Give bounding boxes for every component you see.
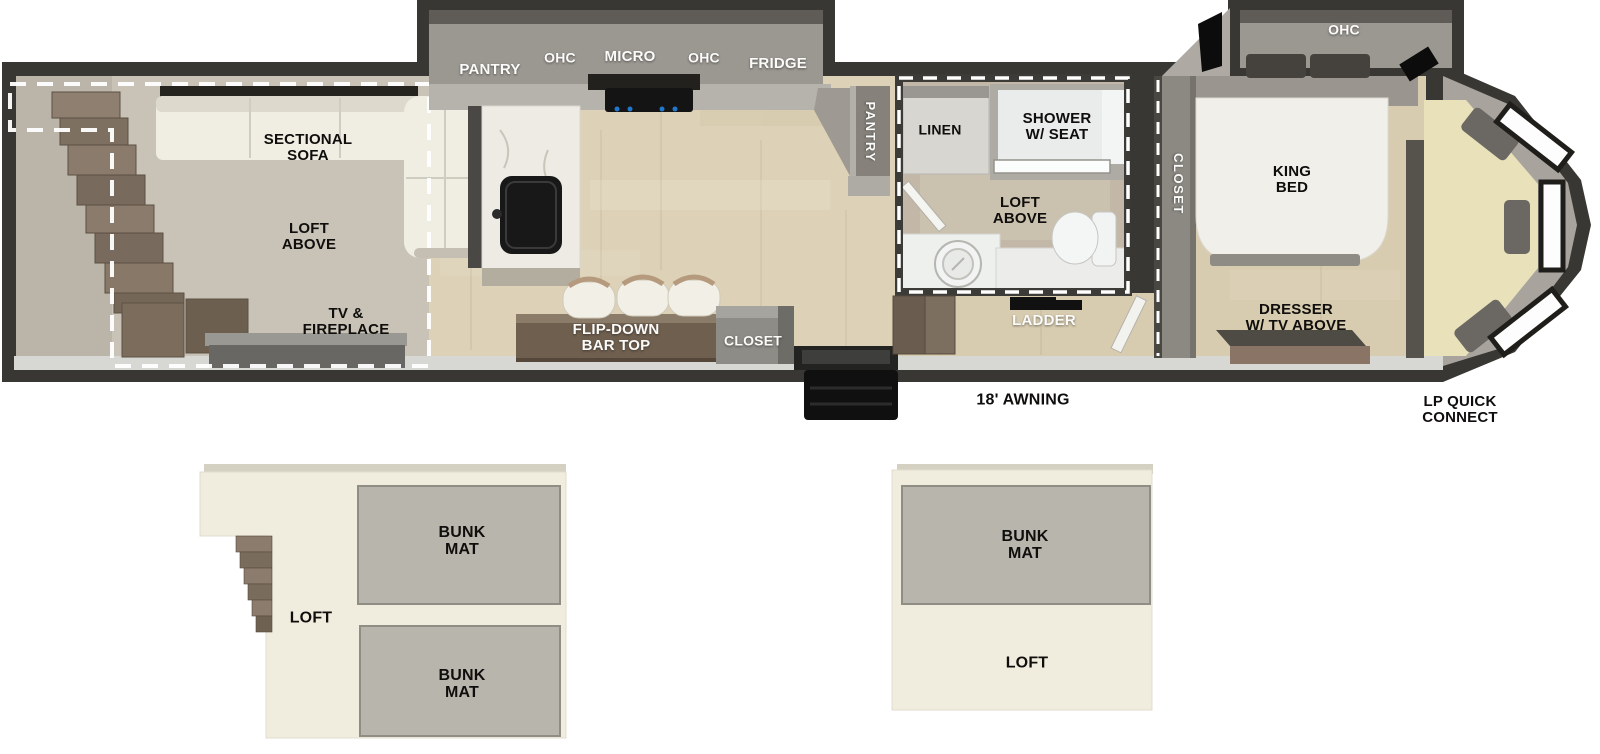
label-closet-mid: CLOSET [724,334,782,349]
entry-step-icon [794,346,898,420]
kitchen-island [468,106,580,286]
cushion-shape [1504,200,1530,254]
label-bunk-mat-1: BUNK MAT [438,524,485,558]
tv-fireplace-shape [205,333,407,368]
label-bedroom-closet: CLOSET [1171,153,1185,215]
loft-diagram-left [200,464,566,738]
label-fridge: FRIDGE [749,56,807,72]
sink-icon [492,176,562,254]
label-bedroom-ohc: OHC [1328,23,1360,38]
loft-diagram-right [892,464,1153,710]
label-bath-loft-above: LOFT ABOVE [993,195,1047,227]
label-flip-down-bar-top: FLIP-DOWN BAR TOP [573,322,660,354]
label-king-bed: KING BED [1273,164,1311,196]
range-hood-icon [588,74,700,90]
label-tv-fireplace: TV & FIREPLACE [303,306,390,338]
label-micro: MICRO [605,49,656,65]
corner-window-icon [1198,12,1222,72]
cooktop-icon [605,88,693,112]
label-living-loft-above: LOFT ABOVE [282,221,336,253]
label-ohc-left: OHC [544,51,576,66]
label-loft-right: LOFT [1006,654,1049,671]
label-linen: LINEN [919,123,962,138]
dresser-shape [1216,330,1370,364]
loft-stairs-icon [236,536,272,632]
label-lp-quick-connect: LP QUICK CONNECT [1422,394,1498,426]
label-dresser: DRESSER W/ TV ABOVE [1246,302,1347,334]
label-shower-w-seat: SHOWER W/ SEAT [1023,111,1092,143]
bar-stool-icon [668,277,720,316]
hall-steps-shape [893,296,955,354]
label-sectional-sofa: SECTIONAL SOFA [264,132,352,164]
toilet-icon [1052,212,1116,266]
bath-sink-icon [935,241,981,287]
bar-stools [563,277,720,318]
floorplan-svg [0,0,1600,754]
nook-divider-shape [1406,140,1424,358]
label-bunk-mat-3: BUNK MAT [1001,528,1048,562]
label-kitchen-pantry: PANTRY [459,62,520,78]
bathroom [899,76,1130,295]
label-awning: 18' AWNING [976,391,1069,408]
window-icon [1541,182,1563,270]
label-ohc-right: OHC [688,51,720,66]
label-ladder: LADDER [1012,313,1076,329]
label-pantry-tall: PANTRY [863,102,877,163]
bed-bench-shape [1210,254,1360,266]
floorplan-page: SECTIONAL SOFA LOFT ABOVE TV & FIREPLACE… [0,0,1600,754]
bar-stool-icon [617,277,669,316]
bar-stool-icon [563,279,615,318]
label-bunk-mat-2: BUNK MAT [438,667,485,701]
label-loft-left: LOFT [290,609,333,626]
